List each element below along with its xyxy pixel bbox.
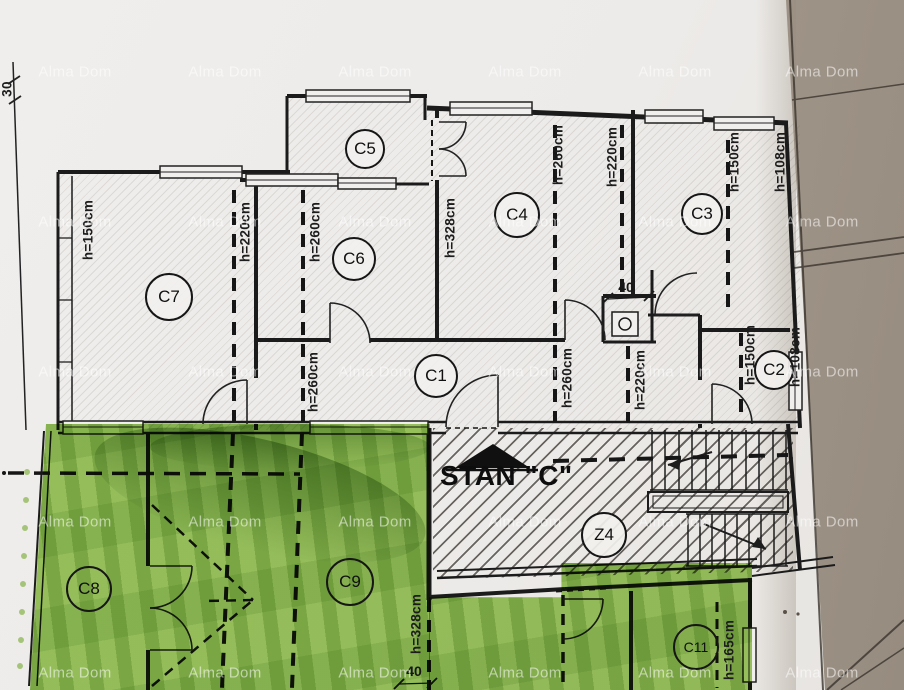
watermark: Alma Dom bbox=[488, 514, 561, 531]
height-label-4: h=260cm bbox=[551, 125, 566, 185]
watermark: Alma Dom bbox=[188, 364, 261, 381]
watermark: Alma Dom bbox=[785, 665, 858, 682]
height-label-1: h=220cm bbox=[238, 202, 253, 262]
height-label-9: h=260cm bbox=[560, 348, 575, 408]
height-label-7: h=108cm bbox=[773, 132, 788, 192]
watermark: Alma Dom bbox=[188, 514, 261, 531]
watermark: Alma Dom bbox=[785, 64, 858, 81]
room-label-C1: C1 bbox=[414, 354, 458, 398]
watermark: Alma Dom bbox=[38, 64, 111, 81]
site-boundary bbox=[8, 62, 26, 430]
watermark: Alma Dom bbox=[638, 514, 711, 531]
watermark: Alma Dom bbox=[338, 514, 411, 531]
marker-streak bbox=[150, 424, 430, 470]
watermark: Alma Dom bbox=[488, 364, 561, 381]
watermark: Alma Dom bbox=[785, 514, 858, 531]
watermark: Alma Dom bbox=[338, 214, 411, 231]
watermark: Alma Dom bbox=[785, 214, 858, 231]
room-label-C6: C6 bbox=[332, 237, 376, 281]
watermark: Alma Dom bbox=[638, 64, 711, 81]
apartment-title: STAN "C" bbox=[440, 460, 573, 492]
watermark: Alma Dom bbox=[785, 364, 858, 381]
watermark: Alma Dom bbox=[38, 665, 111, 682]
watermark: Alma Dom bbox=[638, 665, 711, 682]
height-label-5: h=220cm bbox=[605, 127, 620, 187]
room-label-C9: C9 bbox=[326, 558, 374, 606]
height-label-6: h=150cm bbox=[727, 132, 742, 192]
room-label-C8: C8 bbox=[66, 566, 112, 612]
height-label-11: h=150cm bbox=[743, 325, 758, 385]
room-label-C11: C11 bbox=[673, 624, 719, 670]
height-label-13: h=328cm bbox=[409, 594, 424, 654]
room-label-C7: C7 bbox=[145, 273, 193, 321]
room-label-Z4: Z4 bbox=[581, 512, 627, 558]
watermark: Alma Dom bbox=[488, 665, 561, 682]
room-label-C5: C5 bbox=[345, 129, 385, 169]
watermark: Alma Dom bbox=[338, 665, 411, 682]
watermark: Alma Dom bbox=[188, 214, 261, 231]
floor-plan-photo: STAN "C" C5C7C6C4C3C1C2Z4C8C9C11h=150cmh… bbox=[0, 0, 904, 690]
paper-specks bbox=[783, 610, 800, 616]
watermark: Alma Dom bbox=[188, 64, 261, 81]
height-label-2: h=260cm bbox=[308, 202, 323, 262]
dim-label-2: 30 bbox=[0, 81, 15, 97]
height-label-3: h=328cm bbox=[443, 198, 458, 258]
watermark: Alma Dom bbox=[338, 364, 411, 381]
watermark: Alma Dom bbox=[38, 214, 111, 231]
stairs bbox=[648, 430, 788, 566]
watermark: Alma Dom bbox=[338, 64, 411, 81]
watermark: Alma Dom bbox=[638, 364, 711, 381]
marker-bleed-dots bbox=[17, 469, 30, 669]
watermark: Alma Dom bbox=[488, 64, 561, 81]
height-label-14: h=165cm bbox=[722, 620, 737, 680]
watermark: Alma Dom bbox=[188, 665, 261, 682]
watermark: Alma Dom bbox=[38, 364, 111, 381]
shadow-area-lines bbox=[790, 0, 904, 690]
watermark: Alma Dom bbox=[38, 514, 111, 531]
watermark: Alma Dom bbox=[488, 214, 561, 231]
watermark: Alma Dom bbox=[638, 214, 711, 231]
dim-label-0: 40 bbox=[618, 279, 634, 295]
height-label-8: h=260cm bbox=[306, 352, 321, 412]
